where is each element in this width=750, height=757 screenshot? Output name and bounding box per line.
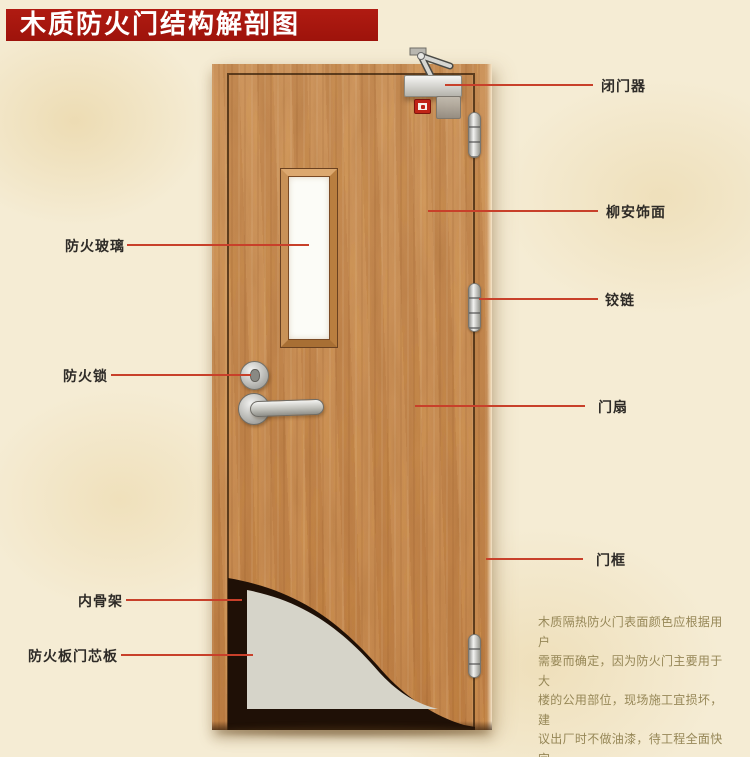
hinge-bottom xyxy=(468,634,481,678)
fire-door-diagram: 木质防火门结构解剖图 xyxy=(0,0,750,757)
pointer-line-hinge xyxy=(479,298,598,300)
label-door-frame: 门框 xyxy=(596,550,626,570)
pointer-line-inner-skeleton xyxy=(126,599,242,601)
frame-edge-highlight xyxy=(487,64,492,730)
pointer-line-veneer xyxy=(428,210,598,212)
hinge-middle xyxy=(468,283,481,332)
label-fire-glass: 防火玻璃 xyxy=(52,236,125,256)
label-fire-lock: 防火锁 xyxy=(40,366,108,386)
fire-safety-sign xyxy=(414,99,431,114)
closer-mount-plate xyxy=(436,96,461,119)
page-title: 木质防火门结构解剖图 xyxy=(6,9,378,41)
label-door-leaf: 门扇 xyxy=(598,397,628,417)
pointer-line-fire-glass xyxy=(127,244,309,246)
door-handle xyxy=(250,399,325,418)
pointer-line-door-closer xyxy=(445,84,593,86)
pointer-line-door-frame xyxy=(486,558,583,560)
hinge-top xyxy=(468,112,481,158)
pointer-line-core-board xyxy=(121,654,253,656)
label-hinge: 铰链 xyxy=(605,290,635,310)
description-note: 木质隔热防火门表面颜色应根据用户 需要而确定，因为防火门主要用于大 楼的公用部位… xyxy=(538,613,724,757)
floor-shadow xyxy=(216,727,490,736)
label-door-closer: 闭门器 xyxy=(601,76,646,96)
keyhole-icon xyxy=(250,369,260,382)
label-inner-skeleton: 内骨架 xyxy=(55,591,123,611)
label-veneer: 柳安饰面 xyxy=(606,202,666,222)
pointer-line-door-leaf xyxy=(415,405,585,407)
label-core-board: 防火板门芯板 xyxy=(14,646,118,666)
door-closer-body xyxy=(404,75,462,97)
pointer-line-fire-lock xyxy=(111,374,251,376)
fire-glass-window xyxy=(281,169,337,347)
